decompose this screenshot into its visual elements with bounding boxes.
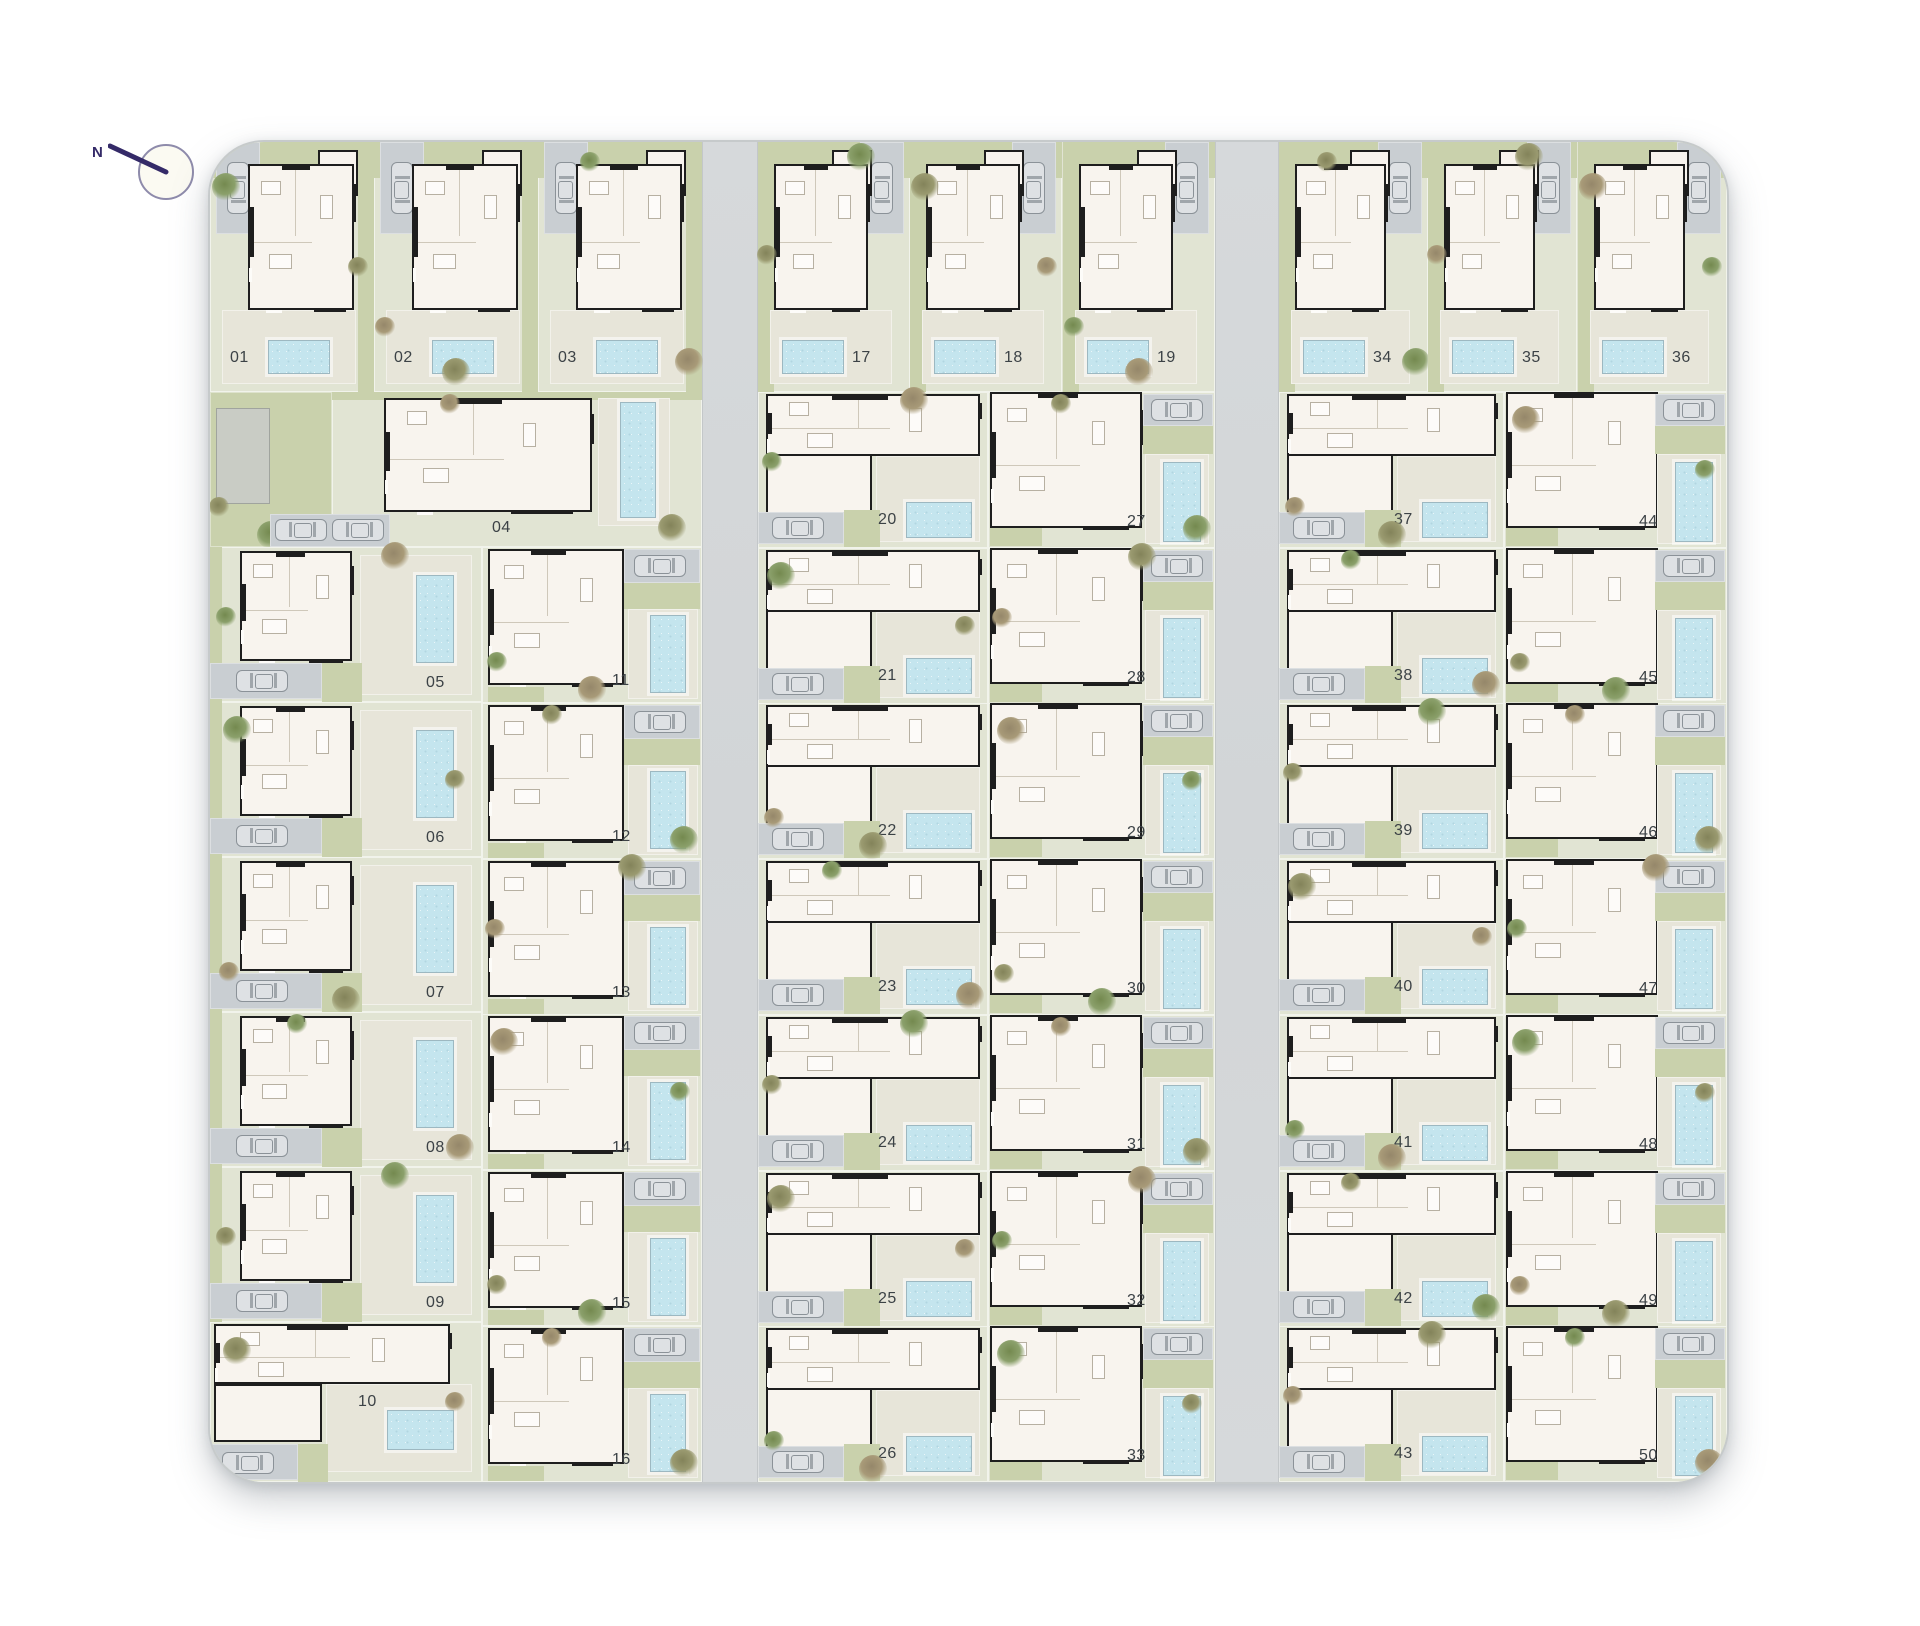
wall-segment [1289, 1192, 1293, 1213]
interior-wall [1512, 1399, 1596, 1400]
car-rear-window [1189, 402, 1192, 417]
house-wing [214, 1384, 322, 1442]
pool [1675, 1396, 1713, 1476]
window [413, 268, 416, 282]
car-windshield [1307, 1454, 1310, 1469]
window [241, 785, 244, 799]
interior-wall [547, 1022, 548, 1083]
car-rear-window [1189, 713, 1192, 728]
plot-50[interactable]: 50 [1504, 1326, 1727, 1482]
interior-wall [1056, 554, 1057, 615]
plot-15[interactable]: 15 [482, 1170, 702, 1326]
car-roof [791, 1300, 809, 1315]
window [1288, 750, 1291, 764]
car-rear-window [260, 1455, 263, 1470]
pool [416, 730, 454, 818]
furniture-table [1019, 632, 1045, 647]
furniture-sofa [1427, 719, 1440, 743]
furniture-table [1535, 1099, 1561, 1114]
car-rear-window [1331, 1454, 1334, 1469]
plot-22[interactable]: 22 [758, 703, 988, 859]
wall-segment [242, 584, 246, 621]
car-roof [791, 677, 809, 692]
house-floorplan [1506, 1326, 1658, 1462]
interior-wall [858, 711, 859, 739]
car-windshield [1542, 176, 1557, 179]
furniture-table [807, 1212, 833, 1227]
garden-strip [624, 1050, 700, 1076]
wall-segment [531, 1018, 566, 1022]
garden-strip [322, 663, 362, 702]
plot-13[interactable]: 13 [482, 859, 702, 1015]
wall-segment [1324, 166, 1348, 170]
car-roof [1682, 870, 1700, 885]
garden-strip [1655, 582, 1725, 610]
furniture-bed [253, 1184, 273, 1198]
pool [1422, 1281, 1488, 1317]
garden-strip [1655, 1360, 1725, 1388]
plot-26[interactable]: 26 [758, 1326, 988, 1482]
interior-wall [1056, 1021, 1057, 1082]
interior-wall [547, 555, 548, 616]
window [266, 310, 282, 313]
window [249, 268, 252, 282]
car-icon [634, 711, 686, 733]
interior-wall [1377, 711, 1378, 739]
interior-wall [967, 170, 968, 236]
plot-34[interactable]: 34 [1279, 142, 1428, 392]
furniture-table [262, 929, 287, 944]
interior-wall [858, 1334, 859, 1362]
house-floorplan [766, 550, 980, 612]
window [1507, 800, 1510, 814]
window [991, 1112, 994, 1126]
wall-segment [1289, 413, 1293, 434]
car-icon [1663, 399, 1715, 421]
plot-09[interactable]: 09 [210, 1167, 482, 1322]
car-windshield [250, 983, 253, 998]
plot-27[interactable]: 27 [988, 392, 1215, 548]
plot-number: 22 [878, 823, 897, 839]
pool [1163, 773, 1201, 853]
car-roof [1312, 677, 1330, 692]
wall-segment [1083, 682, 1129, 686]
garden-strip [522, 178, 538, 392]
car-rear-window [810, 1143, 813, 1158]
interior-wall [1056, 398, 1057, 459]
car-icon [1389, 162, 1411, 214]
plot-23[interactable]: 23 [758, 859, 988, 1015]
car-windshield [1165, 869, 1168, 884]
interior-wall [858, 867, 859, 895]
pool [596, 340, 658, 374]
plot-16[interactable]: 16 [482, 1326, 702, 1482]
furniture-sofa [1143, 195, 1156, 219]
wall-segment [1038, 550, 1078, 554]
wall-segment [216, 1343, 220, 1363]
car-windshield [1677, 869, 1680, 884]
wall-segment [350, 1031, 354, 1060]
wall-segment [572, 1462, 613, 1466]
furniture-table [514, 633, 540, 648]
car-roof [653, 871, 671, 886]
furniture-bed [1007, 408, 1027, 422]
pool [416, 1040, 454, 1128]
wall-segment [1083, 526, 1129, 530]
car-roof [1170, 559, 1188, 574]
garden-strip [1506, 995, 1558, 1013]
window [1288, 1062, 1291, 1076]
pool [650, 1394, 686, 1472]
interior-wall [780, 242, 832, 243]
plot-11[interactable]: 11 [482, 547, 702, 703]
car-icon [1663, 555, 1715, 577]
plot-24[interactable]: 24 [758, 1015, 988, 1171]
interior-wall [1293, 895, 1408, 896]
furniture-bed [1007, 564, 1027, 578]
interior-wall [1512, 465, 1596, 466]
car-roof [653, 1182, 671, 1197]
plot-06[interactable]: 06 [210, 702, 482, 857]
house-floorplan [384, 398, 592, 512]
wall-segment [1508, 899, 1512, 945]
furniture-bed [253, 874, 273, 888]
car-windshield [1393, 176, 1408, 179]
wall-segment [832, 1019, 888, 1023]
car-rear-window [672, 1025, 675, 1040]
car-windshield [786, 1143, 789, 1158]
plot-37[interactable]: 37 [1279, 392, 1504, 548]
car-windshield [1677, 713, 1680, 728]
interior-wall [1120, 170, 1121, 236]
pool [782, 340, 844, 374]
car-windshield [1165, 713, 1168, 728]
interior-wall [220, 1357, 350, 1358]
wall-segment [448, 1333, 452, 1349]
furniture-sofa [909, 1342, 922, 1366]
car-rear-window [274, 673, 277, 688]
furniture-sofa [838, 195, 851, 219]
furniture-sofa [372, 1338, 385, 1362]
window [430, 310, 446, 313]
car-icon [1663, 866, 1715, 888]
car-rear-window [1331, 520, 1334, 535]
window [767, 1373, 770, 1387]
car-windshield [1165, 558, 1168, 573]
plot-20[interactable]: 20 [758, 392, 988, 548]
car-rear-window [274, 828, 277, 843]
garden-strip [844, 666, 880, 703]
car-icon [634, 1178, 686, 1200]
furniture-bed [1310, 1336, 1330, 1350]
furniture-sofa [1357, 195, 1370, 219]
garden-strip [844, 1133, 880, 1170]
furniture-sofa [909, 408, 922, 432]
interior-wall [494, 1089, 569, 1090]
car-rear-window [1701, 1181, 1704, 1196]
house-floorplan [766, 1017, 980, 1079]
plot-19[interactable]: 19 [1063, 142, 1215, 392]
wall-segment [1083, 837, 1129, 841]
car-windshield [1677, 402, 1680, 417]
interior-wall [547, 1334, 548, 1395]
furniture-sofa [909, 564, 922, 588]
interior-wall [1293, 584, 1408, 585]
plot-07[interactable]: 07 [210, 857, 482, 1012]
car-windshield [786, 676, 789, 691]
car-icon [1293, 828, 1345, 850]
interior-wall [858, 556, 859, 584]
window [991, 1268, 994, 1282]
plot-25[interactable]: 25 [758, 1171, 988, 1327]
window [767, 1062, 770, 1076]
car-rear-window [1189, 1336, 1192, 1351]
car-windshield [875, 176, 890, 179]
garden-strip [1143, 737, 1213, 765]
plot-48[interactable]: 48 [1504, 1015, 1727, 1171]
furniture-table [262, 619, 287, 634]
plot-35[interactable]: 35 [1428, 142, 1577, 392]
plot-08[interactable]: 08 [210, 1012, 482, 1167]
house-floorplan [1506, 392, 1658, 528]
furniture-sofa [1506, 195, 1519, 219]
car-rear-window [1189, 1025, 1192, 1040]
furniture-table [597, 254, 620, 269]
plot-02[interactable]: 02 [374, 142, 538, 392]
interior-wall [1335, 170, 1336, 236]
car-icon [236, 825, 288, 847]
interior-wall [289, 557, 290, 607]
car-icon [227, 162, 249, 214]
car-roof [1170, 1337, 1188, 1352]
wall-segment [866, 184, 870, 222]
window [1288, 906, 1291, 920]
plot-47[interactable]: 47 [1504, 859, 1727, 1015]
plot-05[interactable]: 05 [210, 547, 482, 702]
plot-28[interactable]: 28 [988, 548, 1215, 704]
plot-number: 15 [612, 1296, 631, 1312]
wall-segment [1494, 1337, 1498, 1353]
plot-03[interactable]: 03 [538, 142, 702, 392]
plot-17[interactable]: 17 [758, 142, 910, 392]
wall-segment [276, 553, 305, 557]
plot-14[interactable]: 14 [482, 1014, 702, 1170]
furniture-bed [789, 402, 809, 416]
wall-segment [490, 745, 494, 791]
wall-segment [414, 207, 418, 257]
plot-38[interactable]: 38 [1279, 548, 1504, 704]
wall-segment [1352, 1330, 1406, 1334]
pool [432, 340, 494, 374]
interior-wall [494, 934, 569, 935]
car-icon [391, 162, 413, 214]
furniture-table [258, 1362, 284, 1377]
car-windshield [559, 176, 574, 179]
furniture-table [269, 254, 292, 269]
tree-icon [1037, 257, 1057, 277]
interior-wall [1572, 865, 1573, 926]
garden-strip [990, 995, 1042, 1013]
plot-44[interactable]: 44 [1504, 392, 1727, 548]
pool [934, 340, 996, 374]
interior-wall [1293, 1207, 1408, 1208]
interior-wall [473, 404, 474, 455]
furniture-bed [1523, 1187, 1543, 1201]
wall-segment [1352, 1019, 1406, 1023]
window [241, 940, 244, 954]
furniture-sofa [316, 1040, 329, 1064]
furniture-sofa [523, 423, 536, 447]
interior-wall [289, 1177, 290, 1227]
plot-45[interactable]: 45 [1504, 548, 1727, 704]
car-roof [294, 523, 312, 538]
plot-30[interactable]: 30 [988, 859, 1215, 1015]
plot-number: 39 [1394, 823, 1413, 839]
plot-number: 14 [612, 1140, 631, 1156]
plot-41[interactable]: 41 [1279, 1015, 1504, 1171]
wall-segment [768, 1036, 772, 1057]
plot-12[interactable]: 12 [482, 703, 702, 859]
car-roof [653, 559, 671, 574]
plot-number: 05 [426, 675, 445, 691]
wall-segment [572, 1150, 613, 1154]
wall-segment [1289, 1036, 1293, 1057]
plot-39[interactable]: 39 [1279, 703, 1504, 859]
car-rear-window [1393, 200, 1408, 203]
house-floorplan [926, 164, 1020, 310]
pool [906, 1281, 972, 1317]
plot-42[interactable]: 42 [1279, 1171, 1504, 1327]
compass: N [92, 138, 222, 218]
window [1296, 268, 1299, 282]
house-floorplan [766, 1328, 980, 1390]
garden-strip [1655, 426, 1725, 454]
plot-31[interactable]: 31 [988, 1015, 1215, 1171]
car-windshield [1307, 1299, 1310, 1314]
furniture-bed [1523, 1031, 1543, 1045]
window [489, 802, 492, 816]
furniture-sofa [648, 195, 661, 219]
car-roof [394, 181, 409, 199]
plot-10[interactable]: 10 [210, 1322, 482, 1482]
furniture-sofa [316, 575, 329, 599]
wall-segment [314, 308, 346, 312]
interior-wall [246, 920, 308, 921]
interior-wall [547, 1178, 548, 1239]
wall-segment [978, 1026, 982, 1042]
wall-segment [992, 1055, 996, 1101]
furniture-table [1535, 1255, 1561, 1270]
wall-segment [446, 166, 474, 170]
furniture-table [1535, 787, 1561, 802]
plot-40[interactable]: 40 [1279, 859, 1504, 1015]
wall-segment [832, 308, 860, 312]
car-rear-window [1189, 1181, 1192, 1196]
plot-18[interactable]: 18 [910, 142, 1062, 392]
plot-21[interactable]: 21 [758, 548, 988, 704]
furniture-sofa [1427, 875, 1440, 899]
car-icon [1688, 162, 1710, 214]
house-floorplan [766, 705, 980, 767]
window [215, 1368, 218, 1382]
furniture-sofa [1427, 1187, 1440, 1211]
site-boundary: 0102031718193435360405060708091011121314… [208, 140, 1729, 1484]
wall-segment [490, 1056, 494, 1102]
plot-43[interactable]: 43 [1279, 1326, 1504, 1482]
plot-number: 35 [1522, 350, 1541, 366]
furniture-bed [1007, 1187, 1027, 1201]
car-windshield [648, 1181, 651, 1196]
house-floorplan [1287, 1017, 1496, 1079]
car-roof [255, 1294, 273, 1309]
plot-number: 36 [1672, 350, 1691, 366]
plot-36[interactable]: 36 [1578, 142, 1727, 392]
pool [1675, 618, 1713, 698]
interior-wall [1572, 709, 1573, 770]
plot-number: 31 [1127, 1137, 1146, 1153]
plot-29[interactable]: 29 [988, 703, 1215, 859]
plot-32[interactable]: 32 [988, 1171, 1215, 1327]
interior-wall [996, 932, 1080, 933]
house-floorplan [240, 861, 352, 971]
wall-segment [1384, 184, 1388, 222]
plot-number: 06 [426, 830, 445, 846]
plot-number: 27 [1127, 514, 1146, 530]
car-roof [255, 984, 273, 999]
car-windshield [250, 828, 253, 843]
pool [906, 502, 972, 538]
furniture-table [1019, 787, 1045, 802]
car-icon [1663, 710, 1715, 732]
car-windshield [289, 522, 292, 537]
car-rear-window [810, 987, 813, 1002]
wall-segment [1038, 1328, 1078, 1332]
interior-wall [1572, 554, 1573, 615]
house-floorplan [1444, 164, 1535, 310]
wall-segment [1494, 870, 1498, 886]
plot-46[interactable]: 46 [1504, 703, 1727, 859]
garden-strip [1143, 1205, 1213, 1233]
pool [650, 615, 686, 693]
window [1288, 595, 1291, 609]
plot-number: 49 [1639, 1293, 1658, 1309]
plot-01[interactable]: 01 [210, 142, 374, 392]
furniture-sofa [909, 1031, 922, 1055]
house-floorplan [990, 1015, 1142, 1151]
garden-strip [990, 684, 1042, 702]
plot-33[interactable]: 33 [988, 1326, 1215, 1482]
garden-strip [358, 178, 374, 392]
car-rear-window [1331, 676, 1334, 691]
window [489, 646, 492, 660]
wall-segment [1171, 184, 1175, 222]
car-icon [1293, 1451, 1345, 1473]
car-rear-window [1189, 869, 1192, 884]
furniture-table [807, 433, 833, 448]
furniture-bed [785, 181, 805, 195]
car-icon [634, 1334, 686, 1356]
house-floorplan [488, 1016, 624, 1152]
plot-49[interactable]: 49 [1504, 1171, 1727, 1327]
window [767, 595, 770, 609]
interior-wall [996, 621, 1080, 622]
window [767, 906, 770, 920]
wall-segment [1508, 743, 1512, 789]
furniture-bed [504, 1344, 524, 1358]
car-icon [1151, 1178, 1203, 1200]
interior-wall [1572, 1332, 1573, 1393]
plot-number: 34 [1373, 350, 1392, 366]
